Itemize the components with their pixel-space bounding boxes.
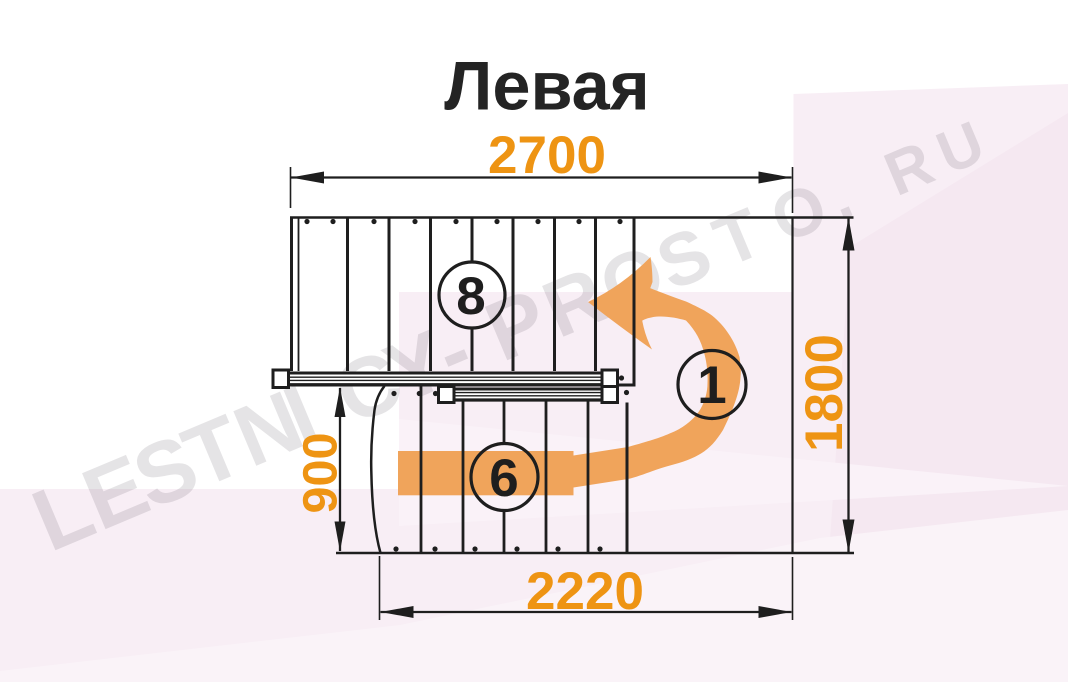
svg-text:2700: 2700 [488,126,606,185]
svg-text:1800: 1800 [795,334,854,452]
svg-text:6: 6 [489,449,518,508]
svg-text:Левая: Левая [444,48,649,125]
svg-text:900: 900 [294,433,348,514]
svg-text:8: 8 [456,267,485,326]
svg-text:2220: 2220 [526,562,644,621]
svg-text:1: 1 [697,356,726,415]
